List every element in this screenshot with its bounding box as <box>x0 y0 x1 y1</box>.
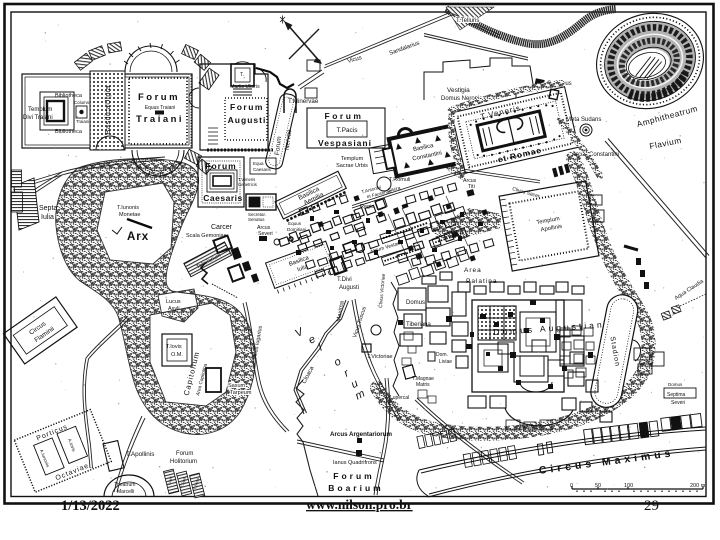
svg-text:Asyli: Asyli <box>168 306 180 312</box>
svg-text:Paedagogium: Paedagogium <box>516 424 544 429</box>
svg-text:Bibliotheca: Bibliotheca <box>55 129 83 135</box>
svg-text:Columna: Columna <box>74 100 92 105</box>
svg-text:Tiberiana: Tiberiana <box>406 322 431 328</box>
svg-text:Domitiani: Domitiani <box>287 227 306 232</box>
svg-text:T.Pacis: T.Pacis <box>337 127 359 134</box>
svg-text:Martis Ultoris: Martis Ultoris <box>230 84 260 90</box>
svg-text:Equa: Equa <box>253 161 264 166</box>
svg-text:Carcer: Carcer <box>211 224 233 231</box>
svg-text:Arx: Arx <box>127 231 149 243</box>
svg-text:T.Telluris: T.Telluris <box>456 18 479 24</box>
svg-text:Arcus Argentariorum: Arcus Argentariorum <box>330 431 392 438</box>
svg-text:Tarpeum: Tarpeum <box>230 390 252 396</box>
svg-text:Theatrum: Theatrum <box>114 482 135 488</box>
svg-text:Matris: Matris <box>416 382 430 388</box>
svg-text:T.Apollinis: T.Apollinis <box>126 451 154 458</box>
svg-text:www.nilson.pro.br: www.nilson.pro.br <box>306 497 413 512</box>
svg-text:Caesaris: Caesaris <box>253 167 272 172</box>
svg-text:0: 0 <box>570 483 573 489</box>
svg-text:Domus: Domus <box>668 382 683 387</box>
svg-text:100: 100 <box>624 483 633 489</box>
svg-text:Forum: Forum <box>333 471 374 481</box>
svg-text:200 m: 200 m <box>690 483 706 489</box>
svg-text:T.: T. <box>240 72 244 78</box>
svg-text:Severi: Severi <box>671 400 685 406</box>
svg-text:Forum: Forum <box>230 102 264 112</box>
svg-text:Genetricis: Genetricis <box>238 182 257 187</box>
svg-text:Septima: Septima <box>667 392 686 398</box>
svg-text:Templum: Templum <box>28 107 52 113</box>
svg-text:Area: Area <box>464 267 482 274</box>
svg-text:Dom.: Dom. <box>436 352 448 358</box>
svg-text:Ianus Quadrifrons: Ianus Quadrifrons <box>333 460 377 466</box>
svg-text:T.Iovis: T.Iovis <box>166 344 182 350</box>
svg-text:Marcelli: Marcelli <box>117 489 134 495</box>
svg-text:Traiani: Traiani <box>76 119 89 124</box>
svg-text:Sacrae Urbis: Sacrae Urbis <box>336 163 368 169</box>
svg-text:Lupercal: Lupercal <box>390 395 409 401</box>
svg-text:T.Romuli: T.Romuli <box>389 177 410 183</box>
svg-text:50: 50 <box>595 483 601 489</box>
svg-text:Liviae: Liviae <box>439 359 452 365</box>
svg-text:Holitorium: Holitorium <box>170 459 197 465</box>
svg-text:Forum: Forum <box>138 92 180 103</box>
svg-text:Forum: Forum <box>205 161 236 171</box>
svg-text:Forum: Forum <box>325 111 364 121</box>
svg-text:Templum: Templum <box>341 156 364 162</box>
svg-text:Bibliotheca: Bibliotheca <box>55 93 83 99</box>
svg-text:1/13/2022: 1/13/2022 <box>61 498 120 514</box>
svg-text:O.M.: O.M. <box>171 352 183 358</box>
svg-text:Equus Traiani: Equus Traiani <box>145 105 176 111</box>
svg-text:Traiani: Traiani <box>136 114 184 125</box>
svg-text:T.Victoriae: T.Victoriae <box>367 354 393 360</box>
svg-text:Monetae: Monetae <box>119 212 140 218</box>
svg-text:Forum: Forum <box>176 451 193 457</box>
svg-text:Equus: Equus <box>288 221 302 226</box>
svg-text:Senatus: Senatus <box>248 217 265 222</box>
svg-text:Boarium: Boarium <box>328 483 383 493</box>
svg-text:Augusti: Augusti <box>339 285 359 291</box>
svg-text:Meta Sudans: Meta Sudans <box>566 117 601 123</box>
svg-text:T.Divi: T.Divi <box>337 277 352 283</box>
svg-text:Vespasiani: Vespasiani <box>318 138 372 148</box>
svg-text:Saxum: Saxum <box>228 383 246 389</box>
svg-text:T.Minervae: T.Minervae <box>288 98 319 105</box>
svg-text:Vestigia: Vestigia <box>447 87 470 94</box>
svg-text:Septa: Septa <box>39 205 57 212</box>
svg-text:Iulia: Iulia <box>41 214 54 221</box>
svg-text:Titi: Titi <box>468 184 475 190</box>
svg-text:Domus: Domus <box>406 300 425 306</box>
svg-text:Caesaris: Caesaris <box>203 193 242 203</box>
svg-text:BasilicaUlpia: BasilicaUlpia <box>103 85 112 135</box>
svg-text:Arcus Constantini: Arcus Constantini <box>572 152 619 158</box>
svg-text:29: 29 <box>644 498 659 514</box>
svg-text:Augusti: Augusti <box>228 115 267 125</box>
svg-text:Lucus: Lucus <box>166 299 181 305</box>
svg-text:T.Iunonis: T.Iunonis <box>117 205 139 211</box>
svg-text:Divi Traiani: Divi Traiani <box>23 115 53 121</box>
